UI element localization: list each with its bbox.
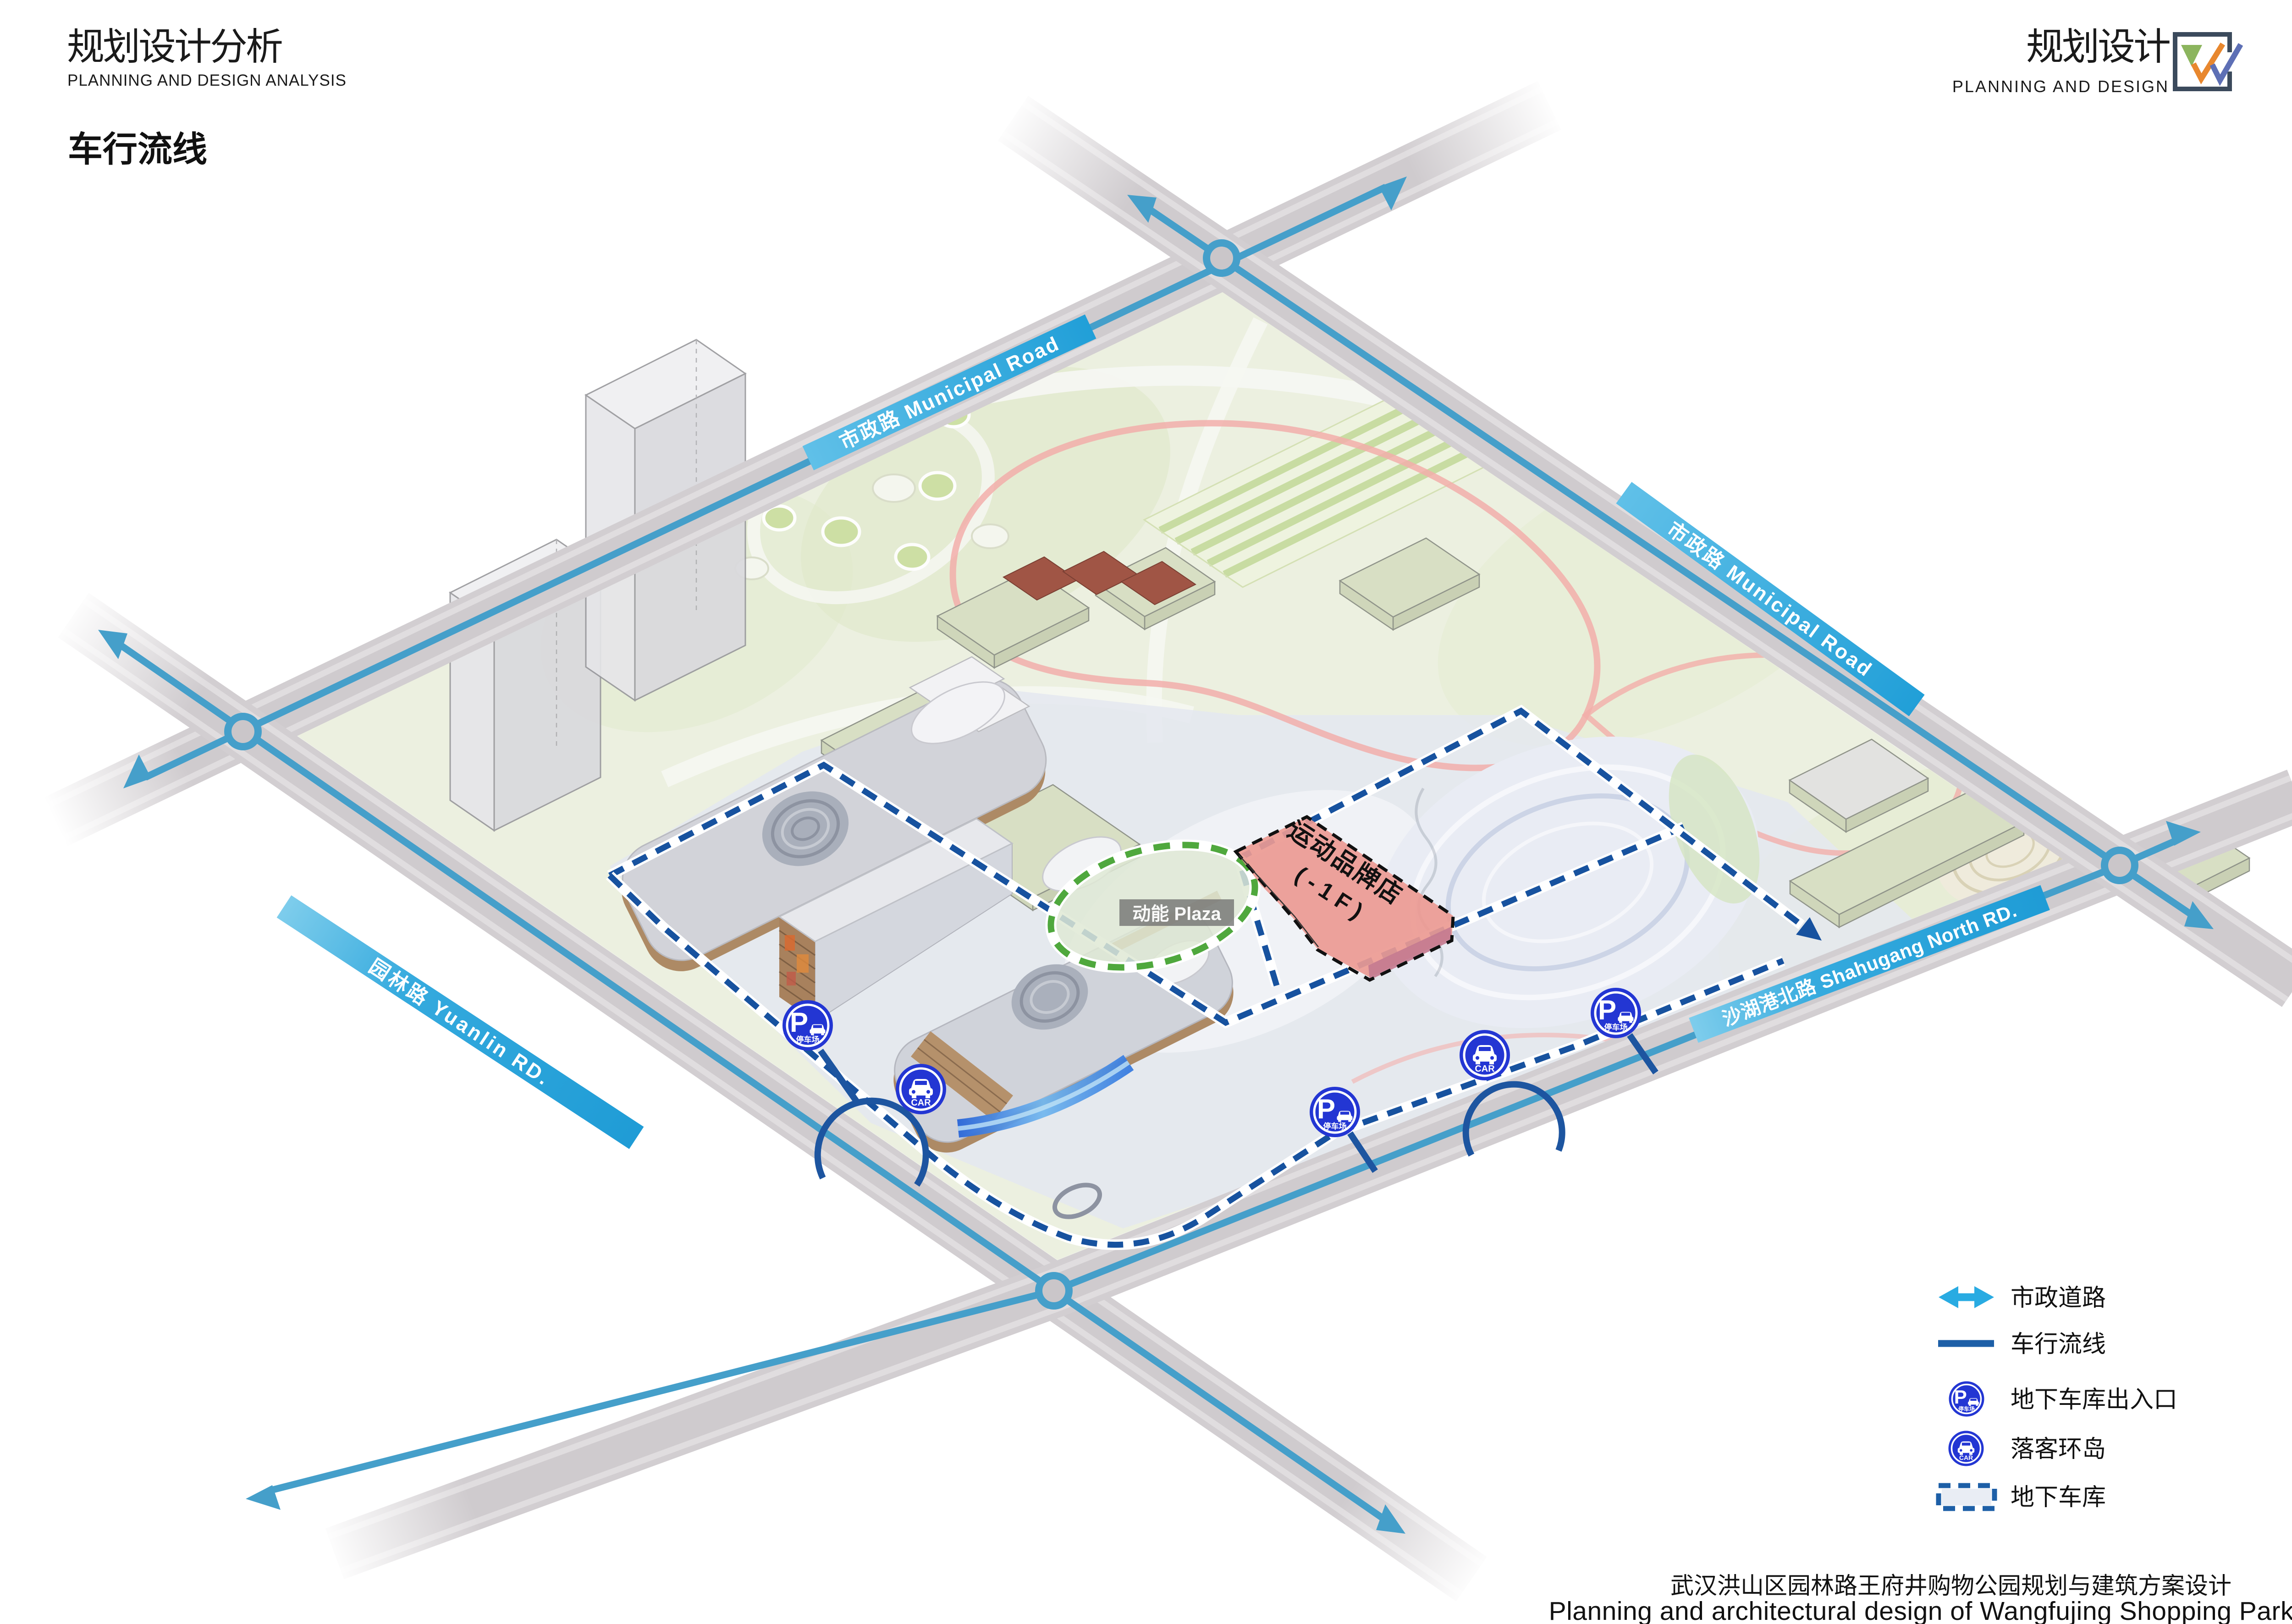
svg-text:动能 Plaza: 动能 Plaza [1132, 904, 1221, 924]
svg-text:地下车库出入口: 地下车库出入口 [2011, 1387, 2177, 1413]
svg-text:地下车库: 地下车库 [2011, 1484, 2106, 1511]
svg-text:园林路 Yuanlin RD.: 园林路 Yuanlin RD. [365, 955, 555, 1090]
svg-text:Planning and architectural des: Planning and architectural design of Wan… [1549, 1596, 2292, 1624]
svg-text:市政道路: 市政道路 [2011, 1285, 2106, 1311]
svg-text:车行流线: 车行流线 [68, 130, 207, 169]
svg-text:落客环岛: 落客环岛 [2011, 1436, 2106, 1463]
svg-text:规划设计分析: 规划设计分析 [67, 26, 282, 68]
svg-text:PLANNING AND DESIGN ANALYSIS: PLANNING AND DESIGN ANALYSIS [67, 72, 347, 89]
svg-text:规划设计: 规划设计 [2026, 26, 2170, 68]
svg-text:武汉洪山区园林路王府井购物公园规划与建筑方案设计: 武汉洪山区园林路王府井购物公园规划与建筑方案设计 [1670, 1573, 2231, 1599]
svg-text:PLANNING AND DESIGN: PLANNING AND DESIGN [1952, 77, 2169, 96]
svg-text:车行流线: 车行流线 [2011, 1331, 2106, 1358]
